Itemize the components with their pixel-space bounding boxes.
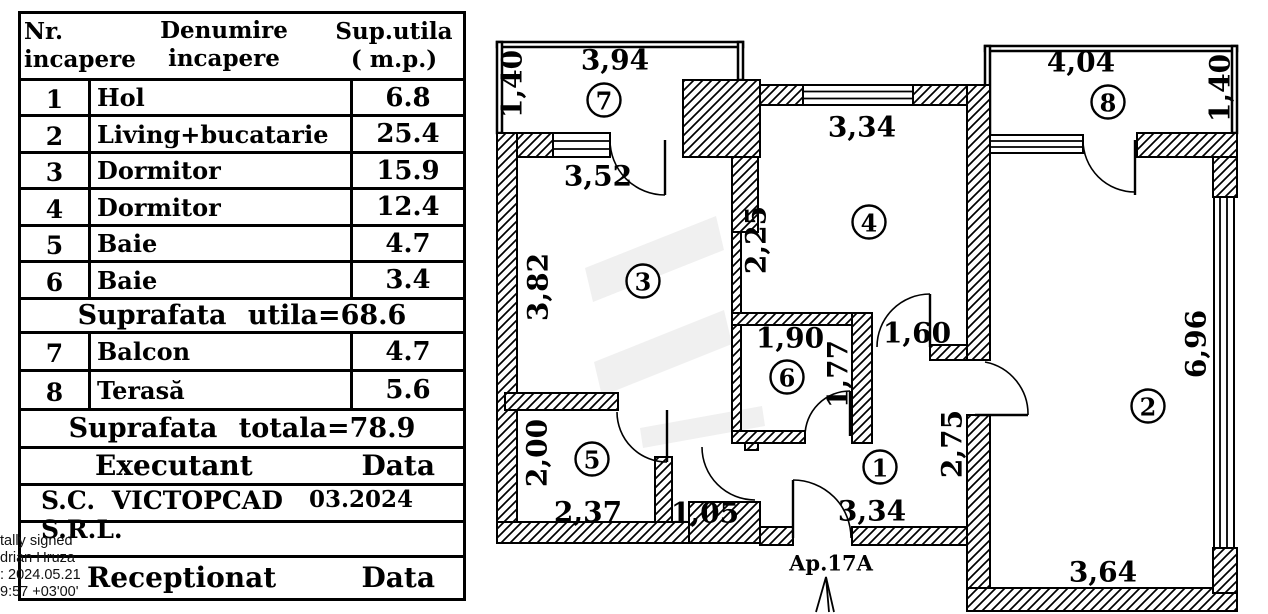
floorplan-sheet: Nr. incapere Denumire incapere Sup.utila…	[0, 0, 1268, 614]
room-number-2: 2	[1140, 393, 1157, 422]
room-circle-7: 7	[588, 84, 621, 117]
signature-line: 9:57 +03'00'	[0, 584, 81, 601]
room-circle-1: 1	[864, 451, 897, 484]
room-circle-4: 4	[853, 206, 886, 239]
room-number-3: 3	[635, 268, 652, 297]
room-circle-2: 2	[1132, 390, 1165, 423]
window	[803, 85, 913, 105]
dim-hall-width: 3,34	[838, 495, 906, 528]
room-number-6: 6	[779, 364, 796, 393]
entrance-annotation: Ap.17A	[788, 551, 874, 613]
dim-room2-height: 6,96	[1180, 310, 1213, 378]
room-circle-8: 8	[1092, 86, 1125, 119]
room-number-4: 4	[861, 209, 878, 238]
dim-terrace-width: 4,04	[1047, 46, 1115, 79]
signature-line: : 2024.05.21	[0, 567, 81, 584]
room-number-8: 8	[1100, 89, 1117, 118]
dim-room4-width: 3,34	[828, 111, 896, 144]
entrance-label: Ap.17A	[788, 551, 874, 576]
dim-room6-height: 1,77	[822, 340, 855, 408]
window	[1214, 197, 1234, 548]
dim-balcony-depth: 1,40	[496, 50, 529, 118]
room-circle-5: 5	[576, 443, 609, 476]
digital-signature-fragment: tally signed drian Hruza : 2024.05.21 9:…	[0, 533, 81, 601]
entrance-arrow-icon	[816, 577, 834, 612]
dim-room3-door: 3,52	[564, 160, 632, 193]
room-number-7: 7	[596, 87, 613, 116]
window	[553, 133, 610, 157]
signature-line: drian Hruza	[0, 550, 81, 567]
window	[990, 135, 1083, 153]
dim-room2-width: 3,64	[1069, 556, 1137, 589]
dim-balcony-width: 3,94	[581, 44, 649, 77]
dim-room3-height: 3,82	[522, 253, 555, 321]
dim-room5-width: 2,37	[554, 496, 622, 529]
dim-corridor-width: 1,05	[671, 497, 739, 530]
door-terrace	[1083, 140, 1135, 195]
signature-line: tally signed	[0, 533, 81, 550]
dim-hall-door: 1,60	[883, 317, 951, 350]
door-corridor	[702, 447, 755, 500]
dim-room6-width: 1,90	[756, 322, 824, 355]
room-number-5: 5	[584, 446, 601, 475]
dim-terrace-depth: 1,40	[1204, 54, 1237, 122]
room-circle-6: 6	[771, 361, 804, 394]
dim-hall-right: 2,75	[936, 410, 969, 478]
dim-room5-height: 2,00	[521, 419, 554, 487]
dim-room4-left: 2,25	[740, 206, 773, 274]
floorplan-drawing: 3,94 1,40 3,52 3,82 3,34 2,25 4,04 1,40 …	[0, 0, 1268, 614]
room-circle-3: 3	[627, 265, 660, 298]
door-living	[975, 362, 1028, 415]
room-number-1: 1	[872, 454, 889, 483]
